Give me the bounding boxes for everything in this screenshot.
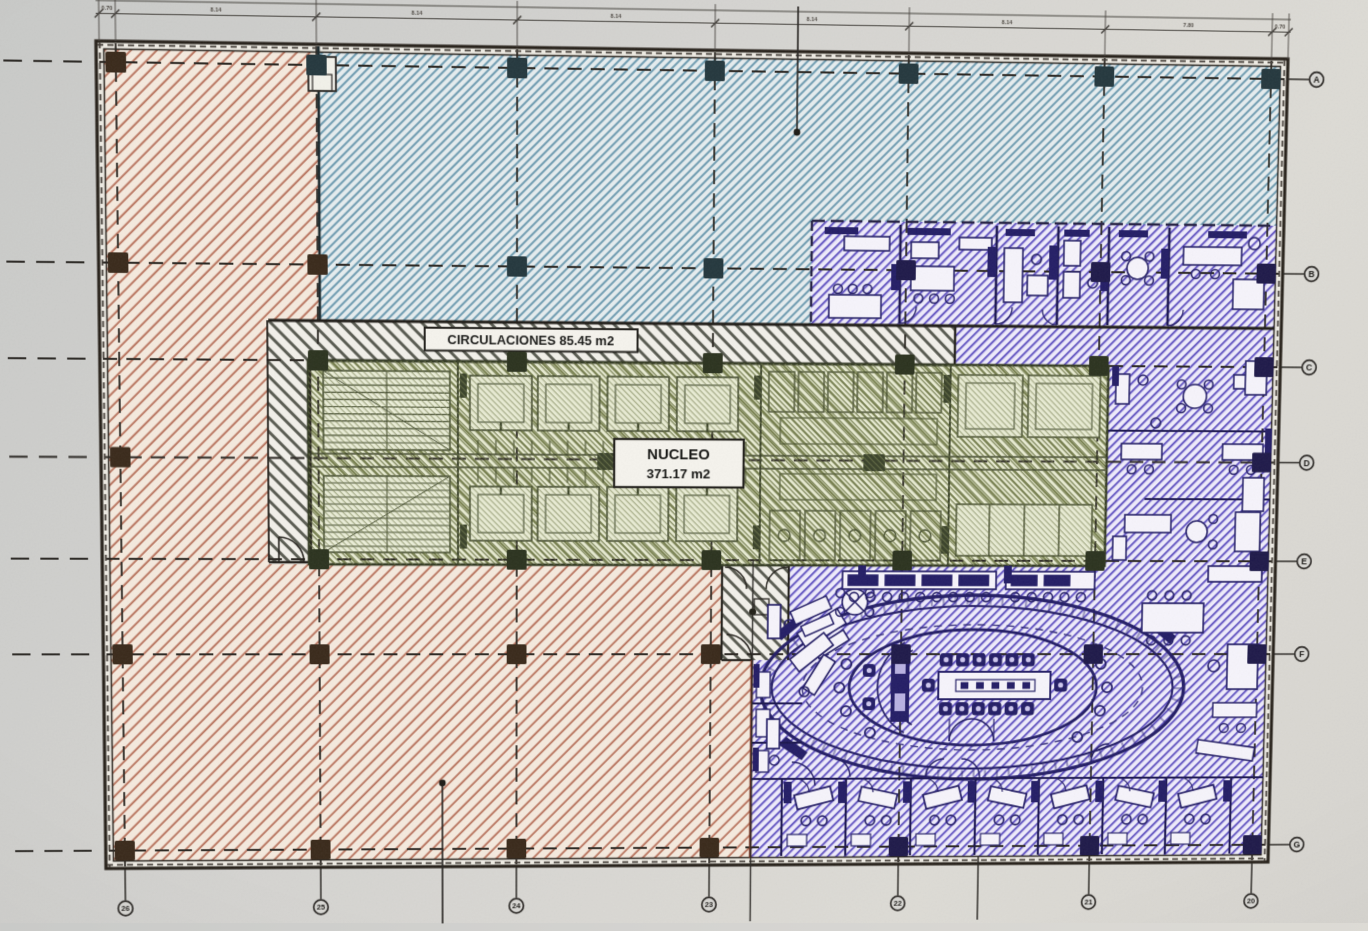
svg-text:8.14: 8.14 xyxy=(1002,21,1014,27)
svg-text:22: 22 xyxy=(894,899,903,907)
svg-text:0.70: 0.70 xyxy=(1275,25,1286,31)
svg-text:CIRCULACIONES 85.45 m2: CIRCULACIONES 85.45 m2 xyxy=(447,333,614,349)
svg-text:NUCLEO: NUCLEO xyxy=(647,447,710,464)
svg-text:F: F xyxy=(1299,650,1305,659)
svg-text:8.14: 8.14 xyxy=(611,14,623,20)
svg-text:G: G xyxy=(1293,840,1300,849)
svg-text:8.14: 8.14 xyxy=(411,11,423,17)
svg-text:D: D xyxy=(1303,458,1310,467)
svg-text:0.70: 0.70 xyxy=(101,6,112,12)
svg-text:25: 25 xyxy=(317,903,326,912)
svg-text:21: 21 xyxy=(1084,898,1093,906)
svg-text:24: 24 xyxy=(512,902,521,910)
svg-text:8.14: 8.14 xyxy=(210,8,222,14)
svg-text:371.17 m2: 371.17 m2 xyxy=(647,466,711,482)
svg-text:B: B xyxy=(1308,270,1315,280)
svg-text:23: 23 xyxy=(705,901,714,909)
svg-text:8.14: 8.14 xyxy=(807,18,819,24)
svg-text:C: C xyxy=(1306,363,1313,373)
svg-text:26: 26 xyxy=(121,904,130,913)
svg-text:20: 20 xyxy=(1247,897,1256,905)
svg-text:7.80: 7.80 xyxy=(1183,24,1194,30)
svg-text:E: E xyxy=(1301,557,1307,566)
svg-text:A: A xyxy=(1313,75,1320,85)
